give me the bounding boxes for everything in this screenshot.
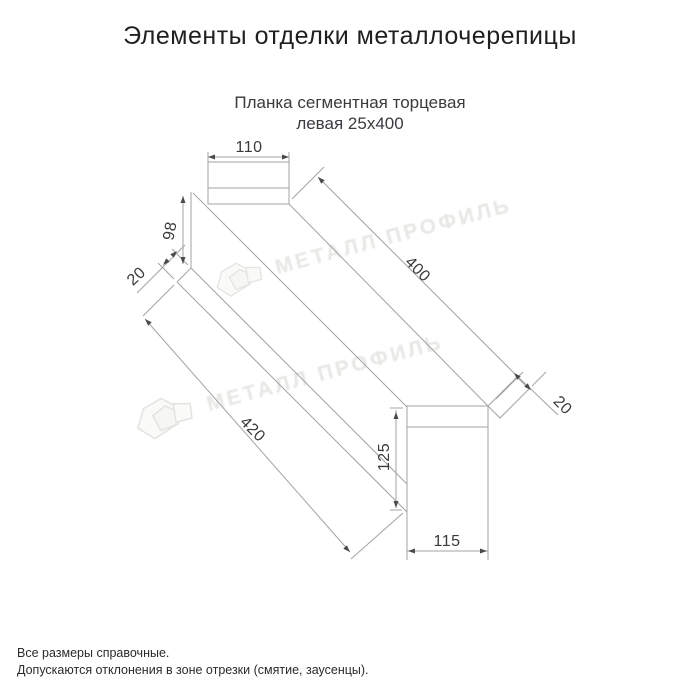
dimension-label: 115	[433, 533, 460, 551]
footer-note-2: Допускаются отклонения в зоне отрезки (с…	[17, 663, 369, 677]
technical-drawing	[0, 0, 700, 700]
drawing-outline	[137, 152, 558, 560]
dimension-label: 110	[235, 139, 262, 157]
product-drawing-page: Элементы отделки металлочерепицы Планка …	[0, 0, 700, 700]
dimension-arrowheads	[145, 155, 531, 554]
dimension-label: 98	[161, 220, 182, 242]
dimension-label: 125	[376, 443, 394, 471]
footer-note-1: Все размеры справочные.	[17, 646, 169, 660]
